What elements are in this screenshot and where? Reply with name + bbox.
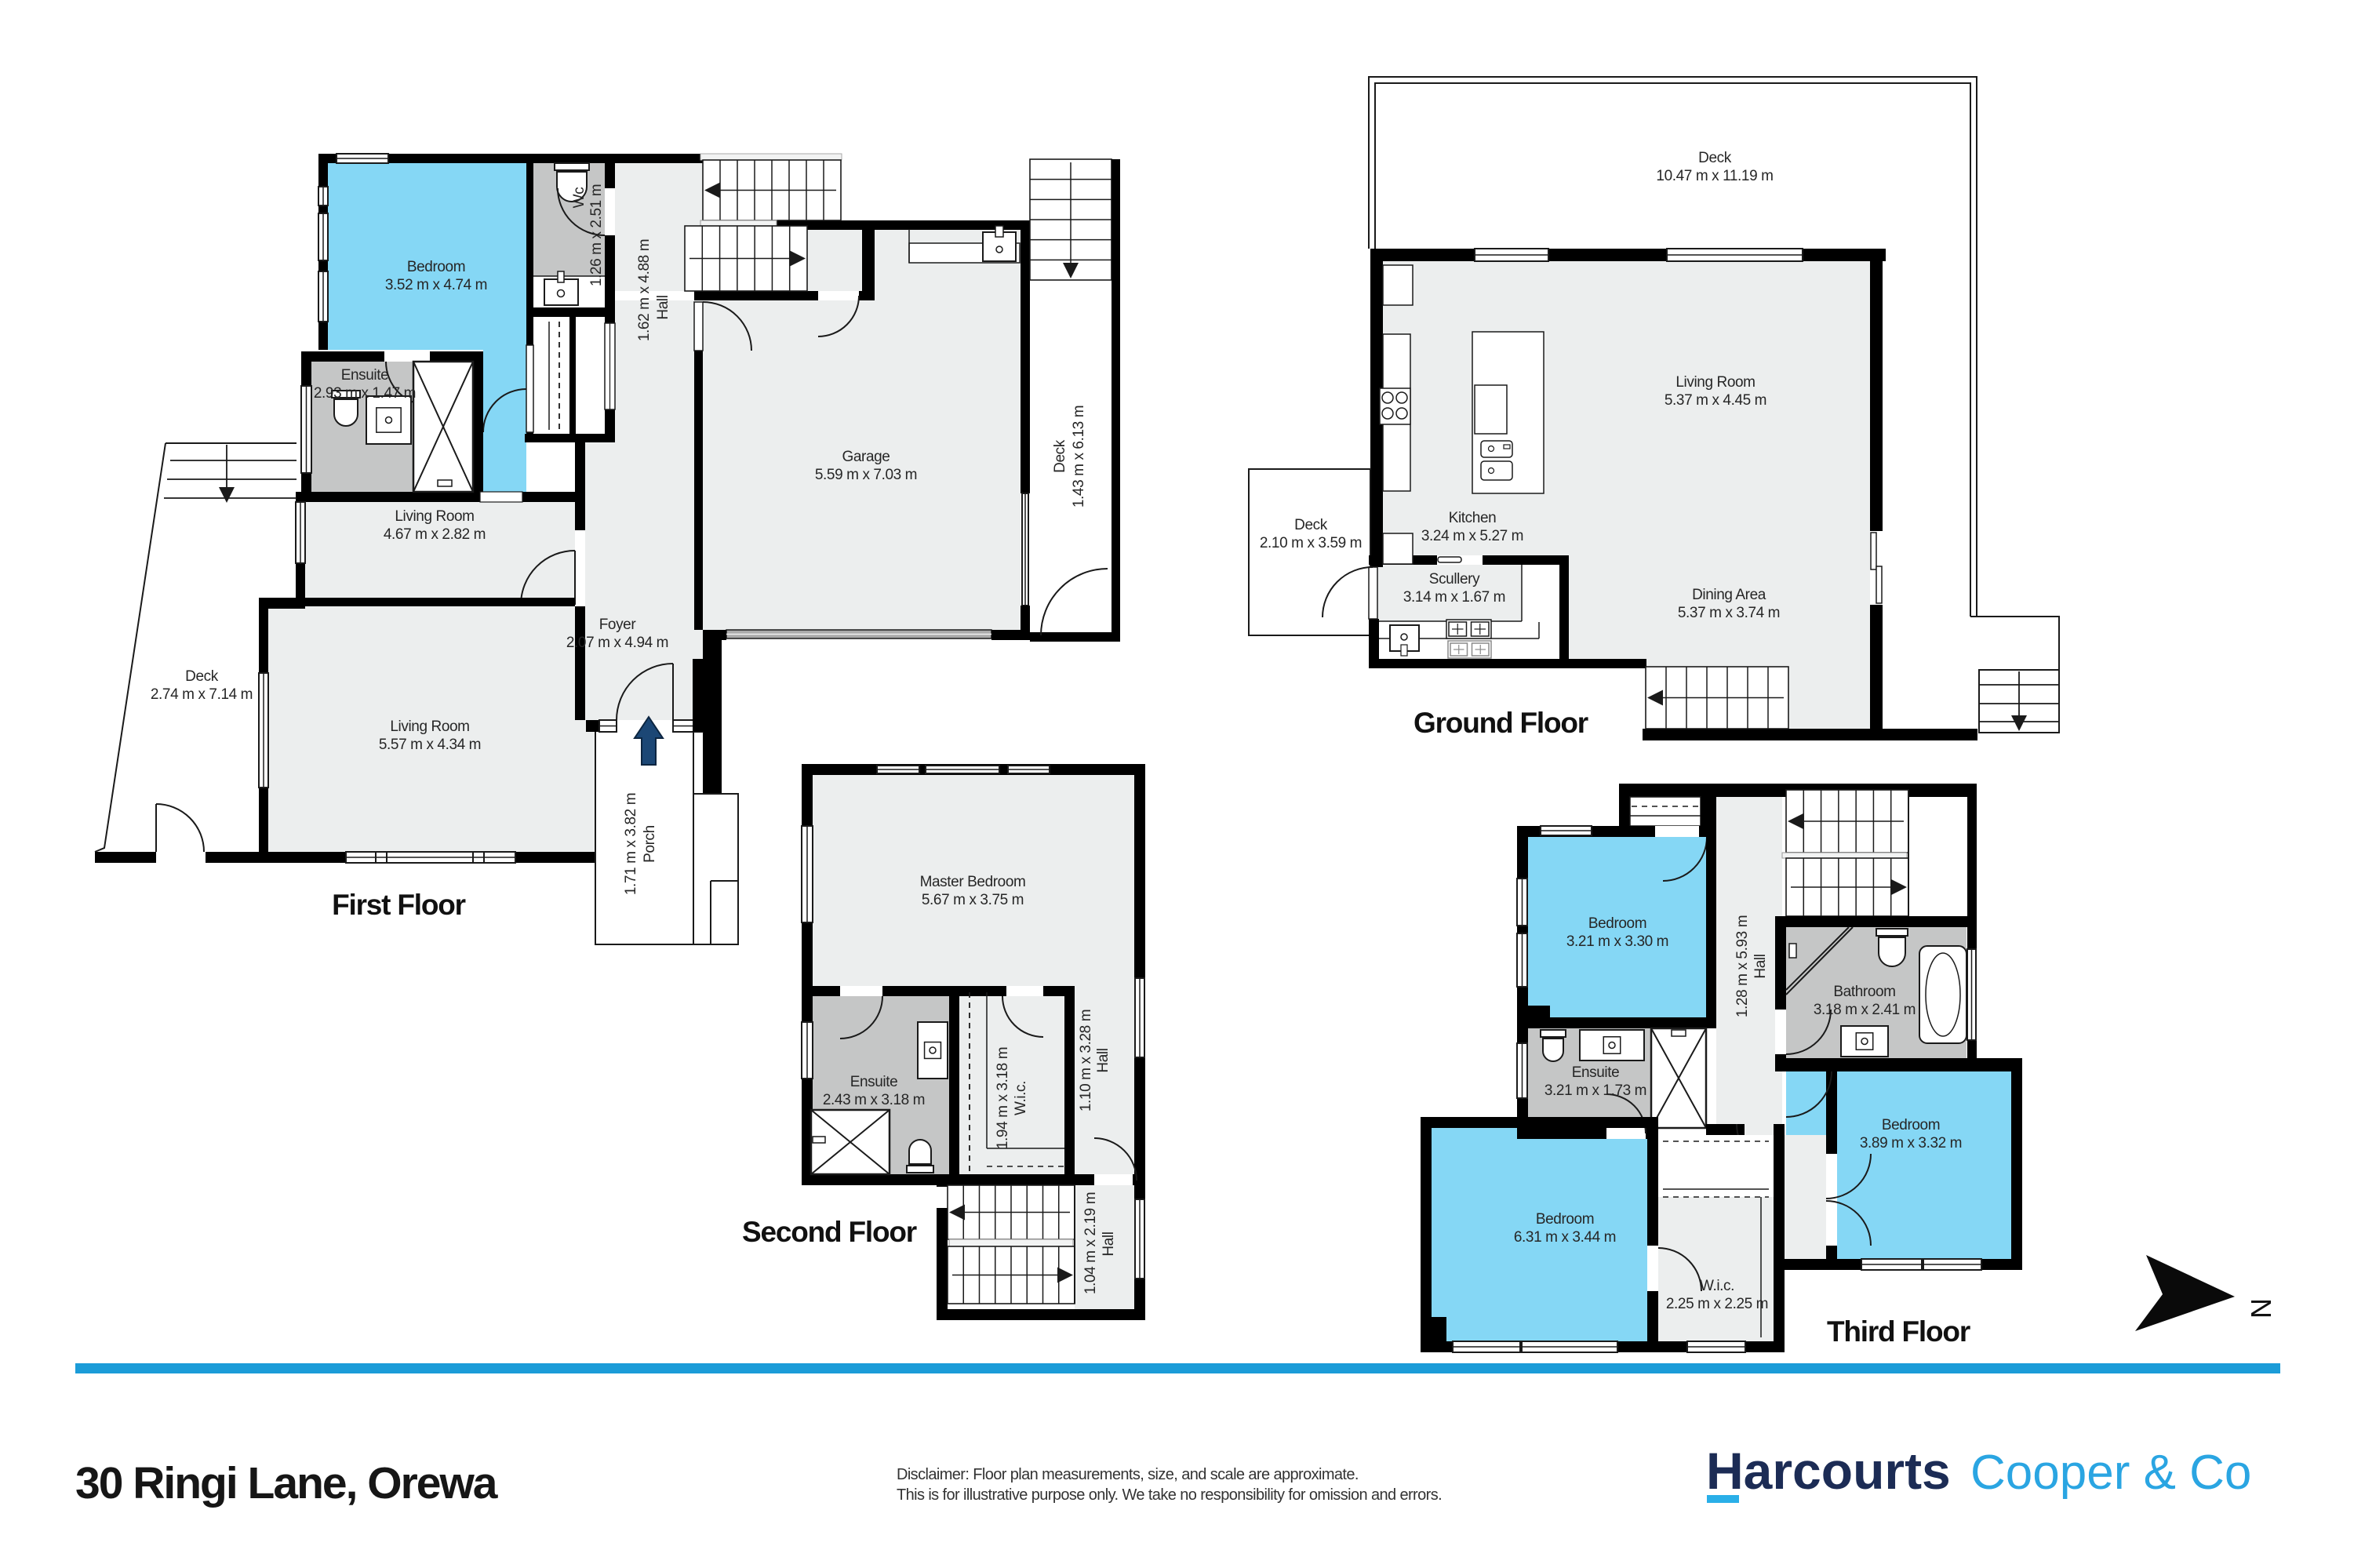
svg-text:N: N bbox=[2245, 1298, 2277, 1319]
svg-text:Kitchen: Kitchen bbox=[1449, 510, 1497, 526]
svg-text:1.43 m x 6.13 m: 1.43 m x 6.13 m bbox=[1071, 406, 1087, 508]
svg-text:1.62 m x 4.88 m: 1.62 m x 4.88 m bbox=[636, 239, 653, 341]
svg-text:Hall: Hall bbox=[1095, 1048, 1112, 1072]
svg-text:3.21 m x 3.30 m: 3.21 m x 3.30 m bbox=[1566, 933, 1668, 950]
svg-text:2.25 m x 2.25 m: 2.25 m x 2.25 m bbox=[1666, 1296, 1768, 1312]
svg-text:5.37 m x 4.45 m: 5.37 m x 4.45 m bbox=[1665, 392, 1766, 409]
svg-text:Deck: Deck bbox=[185, 668, 219, 685]
svg-text:Bedroom: Bedroom bbox=[407, 259, 465, 275]
svg-text:Harcourts: Harcourts bbox=[1706, 1442, 1951, 1500]
svg-text:Ensuite: Ensuite bbox=[341, 367, 389, 384]
svg-text:1.10 m x 3.28 m: 1.10 m x 3.28 m bbox=[1078, 1010, 1094, 1111]
svg-text:Deck: Deck bbox=[1698, 150, 1732, 166]
svg-text:Master Bedroom: Master Bedroom bbox=[920, 874, 1026, 890]
svg-text:5.59 m x 7.03 m: 5.59 m x 7.03 m bbox=[815, 467, 917, 483]
svg-text:Scullery: Scullery bbox=[1429, 571, 1480, 588]
svg-text:2.93 m x 1.47 m: 2.93 m x 1.47 m bbox=[314, 385, 416, 402]
svg-text:5.67 m x 3.75 m: 5.67 m x 3.75 m bbox=[922, 892, 1024, 908]
svg-text:First Floor: First Floor bbox=[332, 889, 466, 921]
svg-text:Garage: Garage bbox=[842, 449, 890, 465]
svg-text:Cooper & Co: Cooper & Co bbox=[1970, 1446, 2251, 1500]
svg-text:Hall: Hall bbox=[1101, 1231, 1117, 1256]
svg-text:1.94 m x 3.18 m: 1.94 m x 3.18 m bbox=[995, 1047, 1011, 1149]
svg-text:30 Ringi Lane, Orewa: 30 Ringi Lane, Orewa bbox=[75, 1458, 499, 1508]
svg-text:W.i.c.: W.i.c. bbox=[1700, 1278, 1734, 1294]
svg-text:Ensuite: Ensuite bbox=[1572, 1064, 1620, 1081]
svg-text:2.10 m x 3.59 m: 2.10 m x 3.59 m bbox=[1260, 535, 1362, 551]
svg-text:Third Floor: Third Floor bbox=[1827, 1315, 1970, 1348]
svg-text:Bedroom: Bedroom bbox=[1588, 915, 1646, 932]
svg-text:Living Room: Living Room bbox=[395, 508, 474, 525]
svg-text:Living Room: Living Room bbox=[390, 719, 469, 735]
svg-text:1.71 m x 3.82 m: 1.71 m x 3.82 m bbox=[623, 793, 639, 895]
svg-text:Hall: Hall bbox=[655, 295, 671, 319]
svg-text:Ensuite: Ensuite bbox=[850, 1074, 898, 1090]
svg-text:Living Room: Living Room bbox=[1675, 374, 1755, 391]
svg-text:Bedroom: Bedroom bbox=[1536, 1211, 1594, 1228]
svg-text:Hall: Hall bbox=[1752, 954, 1769, 978]
svg-text:3.89 m x 3.32 m: 3.89 m x 3.32 m bbox=[1860, 1135, 1962, 1151]
svg-text:3.24 m x 5.27 m: 3.24 m x 5.27 m bbox=[1421, 528, 1523, 544]
svg-text:5.57 m x 4.34 m: 5.57 m x 4.34 m bbox=[379, 737, 481, 753]
svg-text:3.18 m x 2.41 m: 3.18 m x 2.41 m bbox=[1814, 1002, 1916, 1018]
svg-text:Porch: Porch bbox=[642, 825, 658, 863]
svg-text:2.43 m x 3.18 m: 2.43 m x 3.18 m bbox=[823, 1092, 925, 1108]
svg-text:W.i.c.: W.i.c. bbox=[1013, 1081, 1029, 1115]
svg-text:1.04 m x 2.19 m: 1.04 m x 2.19 m bbox=[1082, 1192, 1099, 1294]
svg-text:Deck: Deck bbox=[1052, 439, 1068, 473]
svg-text:10.47 m x 11.19 m: 10.47 m x 11.19 m bbox=[1656, 168, 1773, 184]
svg-text:Bathroom: Bathroom bbox=[1833, 984, 1895, 1000]
svg-text:1.28 m x 5.93 m: 1.28 m x 5.93 m bbox=[1734, 915, 1751, 1017]
svg-text:Deck: Deck bbox=[1294, 517, 1328, 533]
svg-text:Second Floor: Second Floor bbox=[742, 1216, 917, 1248]
svg-text:Dining Area: Dining Area bbox=[1692, 587, 1766, 603]
svg-text:3.52 m x 4.74 m: 3.52 m x 4.74 m bbox=[385, 277, 487, 293]
svg-text:2.07 m x 4.94 m: 2.07 m x 4.94 m bbox=[566, 635, 668, 651]
svg-text:6.31 m x 3.44 m: 6.31 m x 3.44 m bbox=[1514, 1229, 1616, 1246]
svg-text:4.67 m x 2.82 m: 4.67 m x 2.82 m bbox=[384, 526, 486, 543]
svg-text:5.37 m x 3.74 m: 5.37 m x 3.74 m bbox=[1678, 605, 1780, 621]
svg-text:3.21 m x 1.73 m: 3.21 m x 1.73 m bbox=[1544, 1082, 1646, 1099]
svg-text:1.26 m x 2.51 m: 1.26 m x 2.51 m bbox=[588, 184, 605, 286]
svg-text:Foyer: Foyer bbox=[599, 617, 637, 633]
svg-text:Disclaimer: Floor plan measure: Disclaimer: Floor plan measurements, siz… bbox=[897, 1466, 1359, 1483]
svg-text:This is for illustrative purpo: This is for illustrative purpose only. W… bbox=[897, 1486, 1442, 1504]
svg-text:Ground Floor: Ground Floor bbox=[1413, 707, 1588, 739]
svg-text:Wc: Wc bbox=[571, 187, 588, 209]
svg-text:3.14 m x 1.67 m: 3.14 m x 1.67 m bbox=[1403, 589, 1505, 606]
svg-text:2.74 m x 7.14 m: 2.74 m x 7.14 m bbox=[151, 686, 253, 703]
svg-text:Bedroom: Bedroom bbox=[1882, 1117, 1940, 1133]
